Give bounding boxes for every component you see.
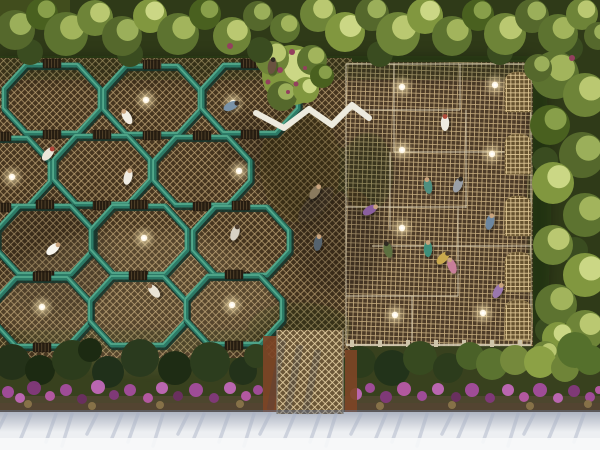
platform-slats [33, 272, 51, 281]
flower-cluster [60, 384, 72, 396]
tree-canopy-highlight [545, 108, 567, 130]
bush [25, 355, 55, 385]
platform-slats [43, 59, 61, 68]
tree-filler [247, 37, 273, 63]
flower-cluster [45, 391, 55, 401]
light-orb-core [11, 176, 14, 179]
tree-canopy-highlight [90, 3, 110, 23]
flower-cluster [27, 381, 41, 395]
flower-cluster [553, 393, 563, 403]
flower-cluster [124, 384, 136, 396]
flower-cluster [502, 384, 514, 396]
flower-cluster [380, 391, 392, 403]
tree-blossom [289, 49, 295, 55]
flower-cluster [2, 386, 14, 398]
platform-slats [0, 203, 11, 212]
tree-canopy-highlight [38, 0, 56, 18]
tree-canopy-highlight [547, 165, 570, 188]
tree-canopy-highlight [201, 0, 219, 18]
flower-cluster [236, 400, 244, 408]
light-orb-core [401, 86, 404, 89]
flower-cluster [568, 385, 580, 397]
platform-slats [130, 200, 148, 209]
tree-canopy-highlight [576, 135, 600, 160]
tree-blossom [227, 43, 233, 49]
flower-cluster [448, 401, 456, 409]
flower-cluster [417, 391, 427, 401]
flower-cluster [526, 402, 534, 410]
flower-cluster [77, 394, 87, 404]
platform-slats [93, 130, 111, 139]
rust-planter-edge [345, 350, 357, 412]
tree-blossom [569, 55, 575, 61]
scene-canvas [0, 0, 600, 450]
flower-cluster [189, 383, 203, 397]
tree-canopy-highlight [474, 1, 492, 19]
flower-cluster [143, 393, 153, 403]
tree-canopy-highlight [420, 1, 440, 21]
beam-post [350, 340, 354, 347]
arch-vault [505, 196, 531, 236]
tree-canopy-highlight [578, 0, 596, 18]
light-orb-core [401, 149, 404, 152]
tree-canopy-highlight [367, 0, 386, 18]
tree-canopy-highlight [548, 228, 570, 250]
sidewalk-bright-edge [0, 438, 600, 450]
tree-canopy-highlight [550, 287, 573, 310]
flower-cluster [91, 380, 105, 394]
platform-slats [33, 343, 51, 352]
platform-slats [225, 341, 243, 350]
light-orb-core [238, 170, 241, 173]
center-tree-canopy-highlight [308, 47, 325, 64]
flower-cluster [397, 382, 411, 396]
bush [121, 339, 159, 377]
tree-shadow [342, 132, 394, 212]
light-orb-core [41, 306, 44, 309]
bush [190, 342, 230, 382]
flower-cluster [253, 385, 263, 395]
platform-slats [36, 200, 54, 209]
flower-cluster [485, 393, 495, 403]
flower-cluster [519, 392, 529, 402]
tree-canopy-highlight [527, 2, 546, 21]
flower-cluster [465, 383, 479, 397]
light-orb-core [145, 99, 148, 102]
flower-cluster [376, 402, 384, 410]
aerial-playground-render [0, 0, 600, 450]
bush [524, 346, 556, 378]
flower-cluster [156, 401, 164, 409]
platform-slats [129, 271, 147, 280]
platform-slats [143, 60, 161, 69]
flower-cluster [224, 382, 236, 394]
platform-slats [0, 132, 11, 141]
tree-canopy-highlight [227, 20, 248, 41]
platform-slats [143, 131, 161, 140]
arch-vault [505, 134, 531, 174]
bush [78, 338, 102, 362]
light-orb-core [231, 304, 234, 307]
flower-cluster [241, 391, 251, 401]
bush [557, 332, 593, 368]
platform-slats [43, 130, 61, 139]
light-orb-core [143, 237, 146, 240]
flower-cluster [24, 400, 32, 408]
light-orb-core [401, 227, 404, 230]
flower-cluster [109, 390, 119, 400]
flower-cluster [209, 393, 219, 403]
tree-canopy-highlight [254, 3, 271, 20]
beam-post [490, 340, 494, 347]
beam-post [434, 340, 438, 347]
arch-vault [505, 300, 531, 340]
platform-slats [193, 131, 211, 140]
flower-cluster [432, 383, 444, 395]
flower-cluster [365, 383, 375, 393]
person-head [443, 114, 448, 119]
platform-slats [225, 270, 243, 279]
tree-canopy-highlight [145, 2, 164, 21]
platform-slats [241, 130, 259, 139]
flower-cluster [533, 383, 547, 397]
person-head [426, 240, 431, 245]
bush [403, 341, 437, 375]
arch-vault [505, 72, 531, 112]
flower-cluster [15, 393, 25, 403]
flower-cluster [173, 391, 183, 401]
platform-slats [232, 201, 250, 210]
light-orb-core [482, 312, 485, 315]
light-orb-core [394, 314, 397, 317]
center-tree-canopy-highlight [319, 66, 332, 79]
tree-canopy-highlight [281, 15, 298, 32]
light-orb-core [494, 84, 497, 87]
flower-cluster [88, 402, 96, 410]
flower-cluster [451, 392, 461, 402]
arch-vault [505, 252, 531, 292]
tree-blossom [303, 66, 307, 70]
platform-slats [193, 202, 211, 211]
beam-post [378, 340, 382, 347]
light-orb-core [491, 153, 494, 156]
tree-blossom [266, 80, 271, 85]
tree-canopy-highlight [534, 56, 549, 71]
tree-blossom [286, 90, 290, 94]
flower-cluster [156, 382, 168, 394]
bush [158, 351, 192, 385]
tree-blossom [294, 82, 299, 87]
flower-cluster [584, 400, 592, 408]
